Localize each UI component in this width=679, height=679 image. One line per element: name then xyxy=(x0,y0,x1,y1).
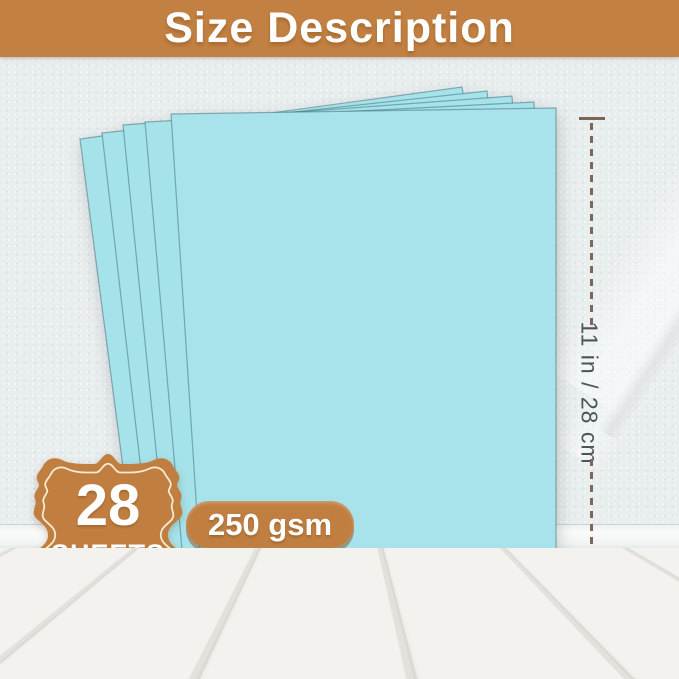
sheet-count-unit: SHEETS xyxy=(20,539,196,570)
sheet-count-badge: 28 SHEETS xyxy=(20,450,196,620)
size-description-banner: Size Description xyxy=(0,0,679,57)
paper-sheet-5 xyxy=(171,108,556,637)
weight-label: 250 gsm xyxy=(208,507,332,543)
width-dimension-label: 8.5 in / 21.6 cm xyxy=(285,638,450,665)
height-dimension-dashes-upper xyxy=(590,123,593,329)
width-dimension-dashes-left xyxy=(192,649,287,652)
height-dimension-bottom-tick xyxy=(579,613,605,616)
width-dimension-dashes-right xyxy=(448,649,543,652)
banner-title: Size Description xyxy=(164,4,515,53)
height-dimension-top-tick xyxy=(579,117,605,120)
sheet-count-value: 28 xyxy=(20,472,196,539)
height-dimension-label: 11 in / 28 cm xyxy=(576,322,603,465)
product-size-infographic: 11 in / 28 cm 8.5 in / 21.6 cm 250 gsm 2… xyxy=(0,0,679,679)
width-dimension-right-tick xyxy=(555,639,558,662)
width-dimension-left-tick xyxy=(170,639,173,662)
height-dimension-dashes-lower xyxy=(590,459,593,613)
weight-pill: 250 gsm xyxy=(186,501,354,548)
